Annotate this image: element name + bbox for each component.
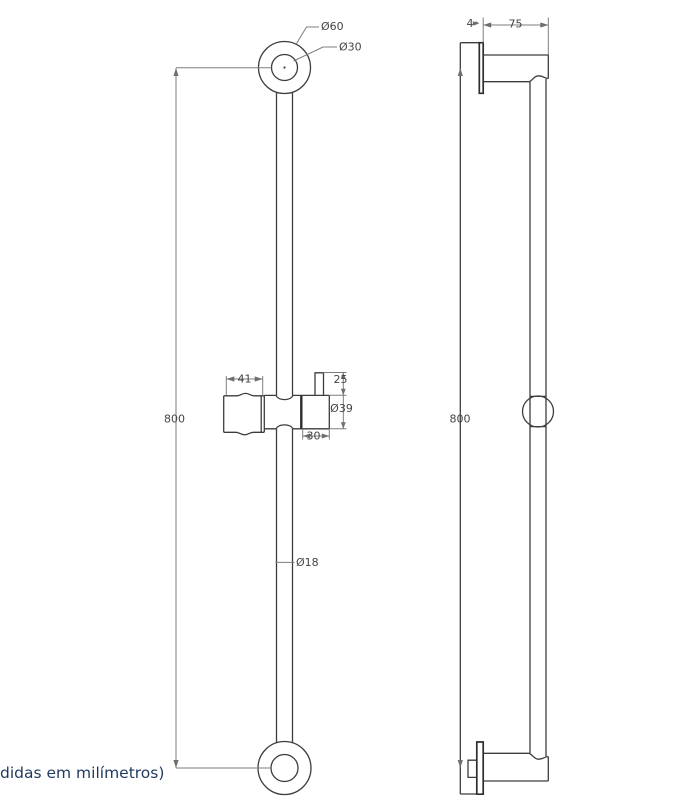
side-bottom-plate bbox=[477, 742, 483, 794]
units-note: didas em milímetros) bbox=[0, 764, 164, 782]
side-view: 4 75 800 bbox=[450, 17, 554, 794]
label-knob-height: 25 bbox=[334, 373, 348, 386]
front-dim-rail-length bbox=[173, 68, 271, 768]
front-rail-bar bbox=[277, 93, 293, 743]
slider-knob bbox=[315, 373, 324, 396]
label-plate-thickness: 4 bbox=[467, 17, 474, 30]
drawing-svg: Ø60 Ø30 800 41 25 Ø39 30 Ø18 bbox=[0, 0, 685, 800]
label-top-outer-diameter: Ø60 bbox=[321, 20, 344, 33]
label-front-rail-length: 800 bbox=[164, 413, 185, 426]
label-slider-body-width: 30 bbox=[307, 430, 321, 443]
clamp-top-edge bbox=[264, 395, 329, 399]
clamp-bottom-edge bbox=[264, 425, 329, 429]
side-bottom-shoulder bbox=[529, 753, 549, 759]
label-top-inner-diameter: Ø30 bbox=[339, 41, 362, 54]
technical-drawing: Ø60 Ø30 800 41 25 Ø39 30 Ø18 bbox=[0, 0, 685, 800]
side-rail-bar bbox=[530, 79, 546, 756]
label-slider-diameter: Ø39 bbox=[330, 402, 353, 415]
side-top-mount bbox=[460, 43, 548, 94]
label-holder-width: 41 bbox=[238, 373, 252, 386]
side-top-shoulder bbox=[529, 76, 549, 82]
side-top-cylinder bbox=[483, 55, 548, 79]
holder-outline bbox=[224, 393, 265, 395]
side-wall-anchor-block bbox=[468, 760, 477, 777]
holder-clamp-double-line bbox=[261, 395, 264, 432]
label-wall-projection: 75 bbox=[509, 18, 523, 31]
side-slider bbox=[523, 396, 554, 427]
side-top-plate bbox=[479, 43, 483, 94]
label-bar-diameter: Ø18 bbox=[296, 556, 319, 569]
label-side-rail-length: 800 bbox=[450, 413, 471, 426]
side-bottom-mount bbox=[460, 742, 548, 794]
front-view: Ø60 Ø30 800 41 25 Ø39 30 Ø18 bbox=[164, 20, 362, 795]
